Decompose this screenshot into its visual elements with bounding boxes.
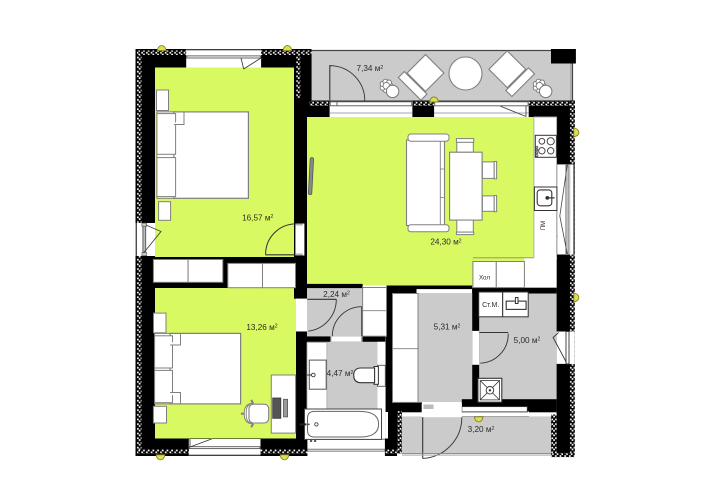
svg-text:7,34 м2: 7,34 м2 <box>357 64 384 73</box>
svg-text:16,57 м2: 16,57 м2 <box>242 213 273 222</box>
svg-text:13,26 м2: 13,26 м2 <box>246 323 277 332</box>
svg-text:ПМ: ПМ <box>541 221 547 230</box>
svg-text:Ст.М.: Ст.М. <box>482 302 499 309</box>
svg-text:Хол: Хол <box>479 274 490 281</box>
svg-text:24,30 м2: 24,30 м2 <box>430 238 461 247</box>
svg-text:4,47 м2: 4,47 м2 <box>327 369 354 378</box>
svg-text:2,24 м2: 2,24 м2 <box>323 290 350 299</box>
svg-text:5,31 м2: 5,31 м2 <box>434 323 461 332</box>
svg-text:5,00 м2: 5,00 м2 <box>514 336 541 345</box>
svg-text:3,20 м2: 3,20 м2 <box>468 425 495 434</box>
